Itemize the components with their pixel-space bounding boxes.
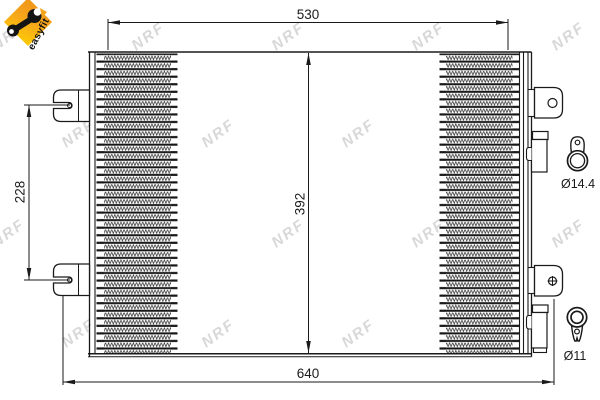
fin-band-left	[104, 54, 171, 354]
dimension-label-bracket-spacing: 228	[13, 181, 28, 204]
bracket-hole	[548, 99, 557, 108]
left-mounting-brackets	[54, 90, 90, 296]
fin-band-right	[446, 54, 513, 354]
connection-block-bottom	[532, 313, 548, 349]
dimension-228	[24, 105, 70, 280]
dimension-label-top-width: 530	[283, 7, 333, 22]
right-mounting-brackets	[528, 88, 563, 297]
connection-blocks	[527, 132, 549, 353]
port-symbol-top	[568, 137, 588, 171]
connection-block-top	[532, 140, 548, 173]
tube-ends-right-inner	[440, 54, 447, 354]
catalog-drawing-page: NRF NRF NRF NRF NRF NRF NRF NRF NRF NRF …	[0, 0, 600, 400]
port-diameter-label-top: Ø14.4	[555, 177, 600, 191]
port-symbol-bottom	[567, 308, 586, 341]
dimension-530	[108, 19, 508, 50]
easyfit-logo: easyfit	[0, 0, 62, 58]
tube-ends-left-inner	[171, 54, 178, 354]
port-diameter-label-bottom: Ø11	[553, 349, 597, 363]
fin-tube-bands	[97, 54, 520, 354]
tube-ends-left-outer	[97, 54, 105, 354]
tube-ends-right-outer	[513, 54, 520, 354]
dimension-label-core-height: 392	[293, 193, 308, 216]
dimension-label-bottom-width: 640	[283, 366, 333, 381]
